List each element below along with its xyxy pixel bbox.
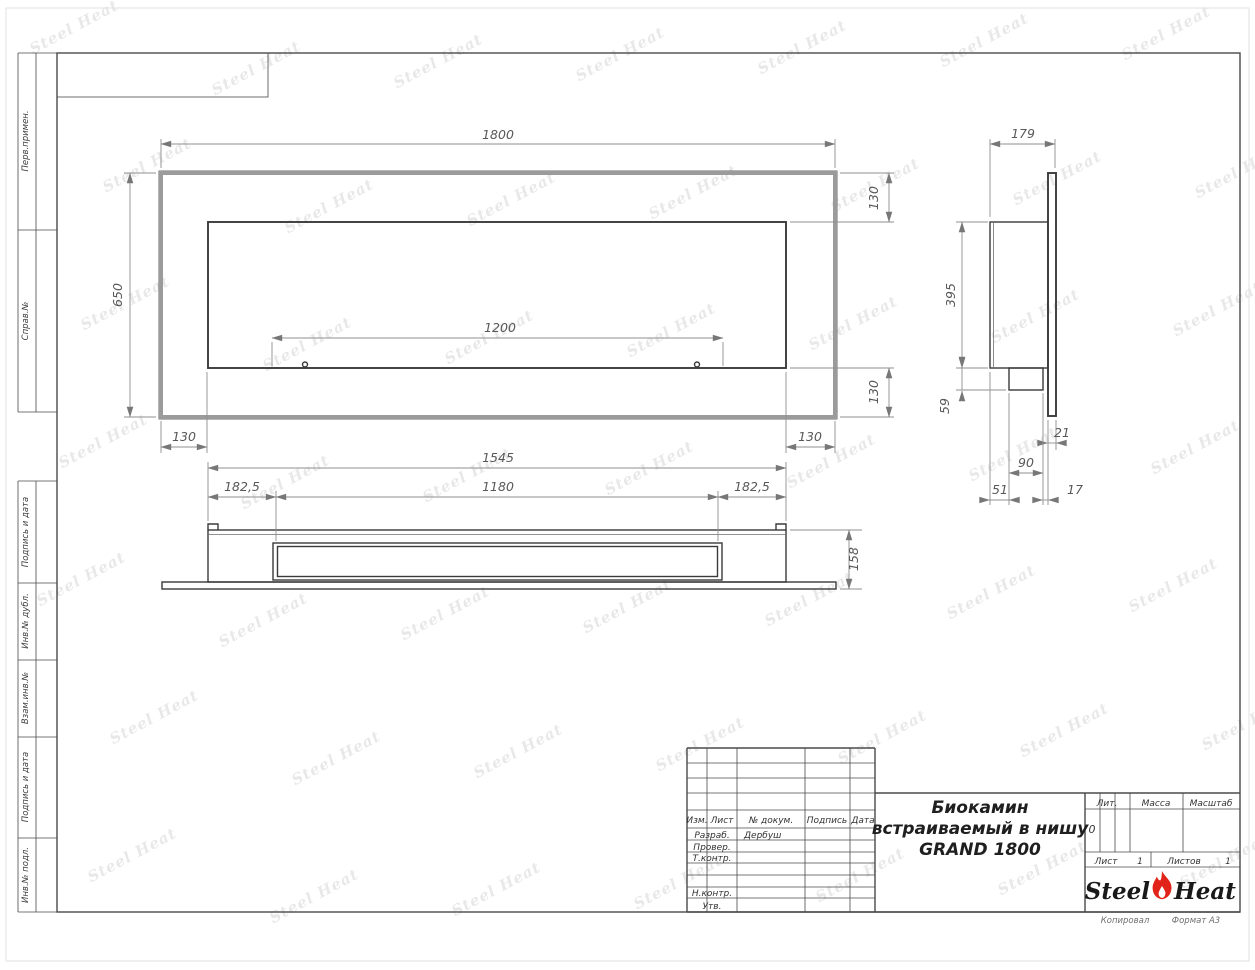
tb-listov-value: 1 (1225, 857, 1231, 867)
logo-text-steel: Steel (1085, 878, 1151, 905)
margin-label-sprav-no: Справ.№ (21, 302, 31, 341)
tb-massa-label: Масса (1142, 799, 1171, 809)
front-view (159, 171, 837, 419)
dim-front-width: 1800 (482, 127, 514, 142)
bracket-right (776, 524, 786, 530)
dim-side-tray-height: 59 (937, 398, 952, 414)
dim-right-top-border: 130 (866, 186, 881, 210)
burner-slot-outer (273, 543, 722, 580)
plan-view (162, 524, 836, 589)
flame-icon (1153, 871, 1172, 899)
title-block: Изм. Лист № докум. Подпись Дата Разраб. … (686, 748, 1240, 926)
front-flange-plate (162, 582, 836, 589)
burner-hole-right (695, 362, 700, 367)
tb-lit-label: Лит. (1096, 799, 1118, 809)
tb-razrab-value: Дербуш (743, 831, 781, 841)
dim-bottom-right-border: 130 (798, 429, 822, 444)
drawing-sheet: Steel HeatSteel HeatSteel HeatSteel Heat… (0, 0, 1255, 970)
drawing-svg: Перв.примен. Справ.№ Подпись и дата Инв.… (0, 0, 1255, 970)
left-margin-columns: Перв.примен. Справ.№ Подпись и дата Инв.… (18, 53, 57, 912)
dim-side-back-offset: 51 (992, 482, 1008, 497)
dim-plan-depth: 158 (846, 547, 861, 571)
margin-label-inv-dubl: Инв.№ дубл. (21, 593, 31, 648)
tb-listov-label: Листов (1166, 857, 1201, 867)
dim-plan-inset-right: 182,5 (734, 479, 770, 494)
corner-stamp-box (57, 53, 268, 97)
tb-nkontr-label: Н.контр. (692, 889, 732, 899)
burner-hole-left (303, 362, 308, 367)
dim-bottom-left-border: 130 (172, 429, 196, 444)
tb-header-izm: Изм. (686, 816, 707, 826)
burner-slot-inner (278, 547, 718, 577)
doc-title-line3: GRAND 1800 (919, 840, 1041, 860)
dim-side-gap: 17 (1067, 482, 1083, 497)
format-label: Формат А3 (1172, 916, 1220, 926)
margin-label-perv-primen: Перв.примен. (21, 110, 31, 171)
front-view-dimensions: 1800 650 130 130 1200 130 (110, 127, 894, 453)
side-front-panel (1048, 173, 1056, 416)
dim-side-tray-depth: 90 (1018, 455, 1034, 470)
tb-header-list: Лист (710, 816, 735, 826)
tb-header-podpis: Подпись (807, 816, 847, 826)
tb-list-label: Лист (1094, 857, 1119, 867)
tb-utv-label: Утв. (703, 902, 722, 912)
side-view (990, 173, 1056, 416)
bracket-left (208, 524, 218, 530)
dim-front-height: 650 (110, 283, 125, 307)
margin-label-inv-podl: Инв.№ подл. (21, 847, 31, 903)
tb-masshtab-label: Масштаб (1190, 799, 1233, 809)
tb-prover-label: Провер. (693, 843, 730, 853)
tb-list-value: 1 (1137, 857, 1143, 867)
dim-right-bottom-border: 130 (866, 380, 881, 404)
dim-plan-slot-width: 1180 (482, 479, 514, 494)
side-tray (1009, 368, 1043, 390)
dim-side-depth: 179 (1011, 126, 1035, 141)
tb-header-n-dokum: № докум. (748, 816, 793, 826)
side-body (990, 222, 1048, 368)
dim-side-inner-height: 395 (943, 283, 958, 307)
doc-title-line2: встраиваемый в нишу (872, 819, 1089, 839)
doc-title-line1: Биокамин (931, 798, 1028, 818)
margin-label-podpis-data-1: Подпись и дата (21, 497, 31, 567)
margin-label-podpis-data-2: Подпись и дата (21, 752, 31, 822)
steelheat-logo: Steel Heat (1085, 871, 1237, 905)
tb-lit-value: 0 (1089, 823, 1096, 836)
dim-side-flange: 21 (1054, 425, 1070, 440)
margin-label-vzam-inv: Взам.инв.№ (21, 672, 31, 724)
dim-plan-inset-left: 182,5 (224, 479, 260, 494)
side-view-dimensions: 179 395 59 21 90 (937, 126, 1083, 505)
plan-view-dimensions: 1545 182,5 1180 182,5 158 (208, 450, 862, 589)
kopiroval-label: Копировал (1101, 916, 1150, 926)
tb-tkontr-label: Т.контр. (692, 854, 731, 864)
dim-burner-length: 1200 (484, 320, 516, 335)
logo-text-heat: Heat (1173, 878, 1236, 905)
tb-razrab-label: Разраб. (694, 831, 729, 841)
dim-plan-width: 1545 (482, 450, 514, 465)
